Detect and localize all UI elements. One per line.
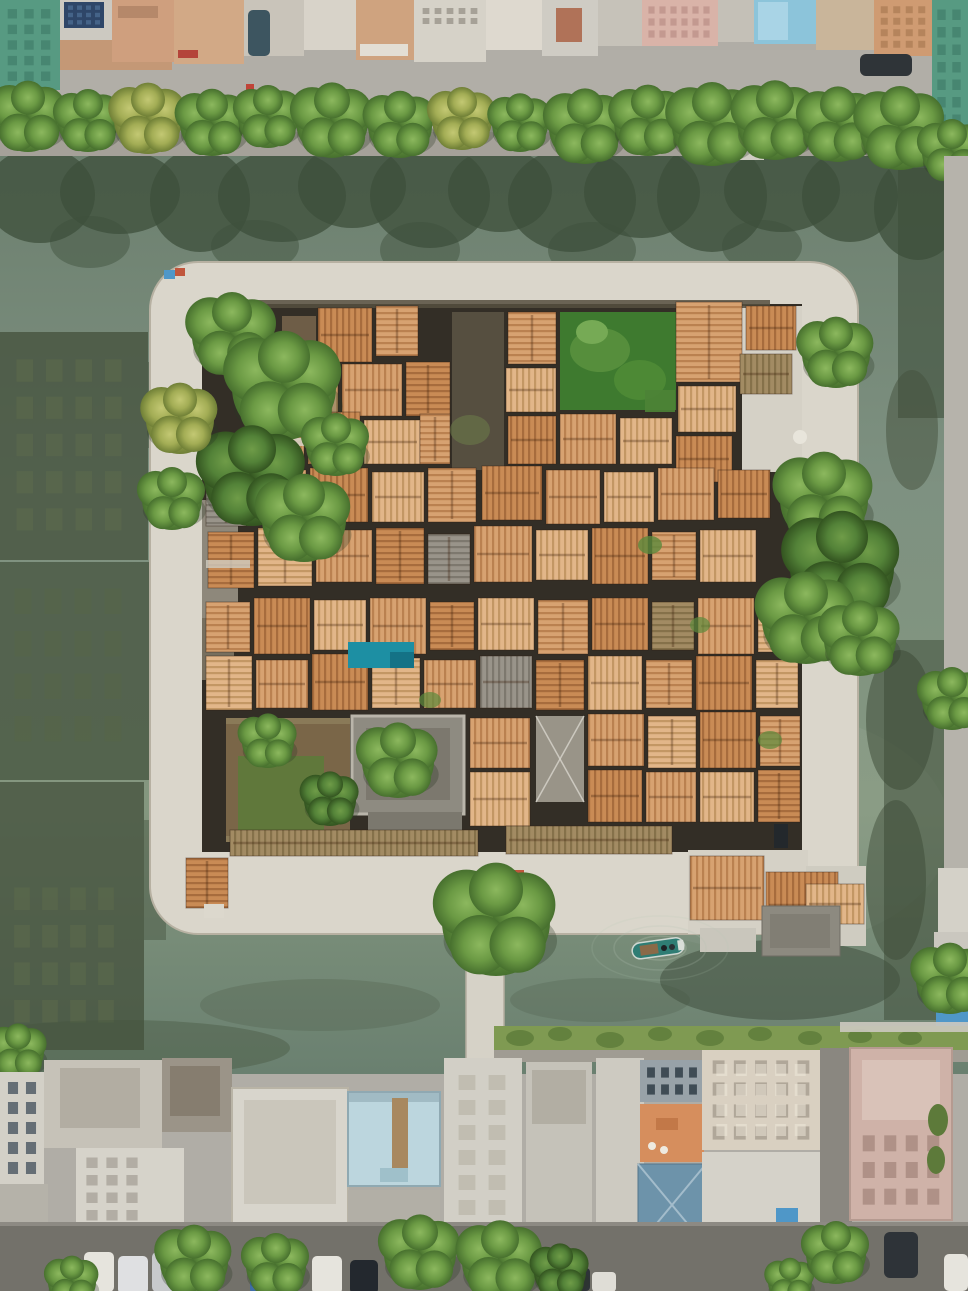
window — [716, 1124, 727, 1136]
north-bank-r — [178, 50, 198, 58]
window — [41, 40, 50, 49]
tree-canopy — [60, 1256, 84, 1280]
window — [716, 1104, 727, 1116]
window — [86, 1175, 97, 1186]
window — [756, 1124, 767, 1136]
window — [863, 1162, 875, 1178]
island-roofs-e — [576, 320, 608, 344]
window — [670, 6, 676, 13]
window — [435, 18, 442, 24]
window — [75, 716, 92, 742]
car — [350, 1260, 378, 1291]
window — [95, 20, 100, 24]
window — [952, 97, 960, 108]
window — [46, 397, 63, 419]
south-pier-hedge-e — [748, 1027, 772, 1041]
window — [68, 20, 73, 24]
window — [795, 1124, 806, 1136]
window — [703, 30, 709, 37]
north-bank-r — [758, 2, 788, 40]
tree-canopy — [937, 667, 967, 697]
village-island-r — [164, 270, 175, 279]
island-roofs-e — [758, 731, 782, 749]
water-reflections-e — [200, 979, 440, 1031]
south-bank-r — [60, 1068, 140, 1128]
car — [884, 1232, 918, 1278]
tree-canopy — [756, 80, 794, 118]
north-bank-r — [816, 0, 874, 50]
window — [906, 1135, 918, 1151]
tree-canopy — [402, 1214, 438, 1250]
window — [423, 8, 430, 14]
window — [659, 18, 665, 25]
tree-canopy — [332, 443, 363, 474]
window — [918, 41, 925, 48]
window — [471, 8, 478, 14]
window — [736, 1064, 747, 1076]
window — [906, 6, 913, 13]
island-roofs-r — [390, 652, 414, 668]
car — [118, 1256, 148, 1291]
window — [906, 18, 913, 25]
tree-canopy — [384, 91, 416, 123]
window — [648, 6, 654, 13]
window — [46, 434, 63, 456]
window — [775, 1104, 786, 1116]
window — [881, 18, 888, 25]
window — [648, 30, 654, 37]
window — [756, 1064, 767, 1076]
tree-canopy — [176, 417, 211, 452]
aerial-photo-moated-village — [0, 0, 968, 1291]
window — [45, 589, 62, 615]
island-roofs-r — [206, 560, 250, 568]
scene-canvas — [0, 0, 968, 1291]
window — [756, 1104, 767, 1116]
island-roofs-r — [204, 904, 224, 918]
north-bank-r — [360, 44, 408, 56]
window — [98, 963, 114, 986]
tree-canopy — [283, 474, 325, 516]
tree-canopy — [144, 117, 179, 152]
dark-shed — [774, 824, 788, 848]
window — [881, 29, 888, 36]
south-bank-r — [640, 1060, 704, 1102]
window — [881, 41, 888, 48]
window — [41, 9, 50, 18]
south-pier-hedge-e — [696, 1030, 724, 1046]
north-bank-r — [486, 0, 542, 50]
window — [26, 1082, 36, 1094]
window — [906, 1189, 918, 1205]
walled-yard — [452, 312, 504, 470]
window — [661, 1084, 669, 1094]
window — [659, 6, 665, 13]
window — [692, 6, 698, 13]
rooftop-tank — [793, 430, 807, 444]
window — [489, 1125, 506, 1140]
window — [459, 1150, 476, 1165]
window — [937, 80, 945, 91]
window — [692, 18, 698, 25]
window — [918, 6, 925, 13]
tree-canopy — [779, 1258, 801, 1280]
tree-canopy — [73, 89, 103, 119]
window — [459, 1075, 476, 1090]
window — [703, 18, 709, 25]
north-bank-r — [118, 6, 158, 18]
orange-roof-terrace — [640, 1104, 704, 1162]
tree-canopy — [821, 1221, 851, 1251]
water-reflections-e — [886, 370, 938, 490]
window — [937, 10, 945, 21]
window — [126, 1175, 137, 1186]
window — [41, 72, 50, 81]
window — [106, 1175, 117, 1186]
window — [8, 9, 17, 18]
window — [8, 1162, 18, 1174]
tree-canopy — [157, 467, 187, 497]
window — [70, 925, 86, 948]
car — [592, 1272, 616, 1291]
tree-canopy — [265, 739, 292, 766]
tree-canopy — [416, 1250, 453, 1287]
window — [918, 29, 925, 36]
window — [26, 1102, 36, 1114]
window — [471, 18, 478, 24]
window — [14, 1000, 30, 1023]
window — [86, 1158, 97, 1169]
pool-deck-planks — [392, 1098, 408, 1178]
tree-canopy — [24, 115, 59, 150]
south-bank-r — [170, 1066, 220, 1116]
window — [736, 1124, 747, 1136]
window — [736, 1104, 747, 1116]
south-bank-r — [862, 1060, 940, 1120]
tree-canopy — [842, 600, 878, 636]
window — [795, 1064, 806, 1076]
window — [105, 359, 122, 381]
tree-canopy — [168, 497, 199, 528]
window — [8, 72, 17, 81]
window — [75, 508, 92, 530]
window — [86, 5, 91, 9]
water-reflections-e — [50, 216, 130, 268]
window — [8, 1082, 18, 1094]
window — [26, 1162, 36, 1174]
window — [716, 1084, 727, 1096]
window — [77, 5, 82, 9]
window — [489, 1200, 506, 1215]
window — [75, 434, 92, 456]
window — [46, 508, 63, 530]
window — [884, 1135, 896, 1151]
tree-canopy — [784, 572, 828, 616]
tree-canopy — [196, 89, 228, 121]
window — [45, 631, 62, 657]
tree-canopy — [394, 758, 431, 795]
window — [105, 716, 122, 742]
window — [75, 674, 92, 700]
window — [675, 1067, 683, 1077]
right-bank-r — [938, 868, 968, 932]
tree-canopy — [253, 85, 283, 115]
window — [692, 30, 698, 37]
window — [77, 13, 82, 17]
tree-canopy — [84, 119, 115, 150]
window — [15, 716, 32, 742]
tree-canopy — [131, 83, 165, 117]
window — [884, 1162, 896, 1178]
tree-canopy — [802, 452, 846, 496]
tree-canopy — [208, 121, 241, 154]
window — [489, 1075, 506, 1090]
south-pier-hedge-e — [548, 1027, 572, 1041]
window — [14, 963, 30, 986]
tree-canopy — [819, 317, 853, 351]
window — [716, 1064, 727, 1076]
tree-canopy — [396, 123, 429, 156]
car — [248, 10, 270, 56]
window — [459, 18, 466, 24]
south-bank-r — [244, 1100, 336, 1204]
window — [489, 1175, 506, 1190]
tree-canopy — [816, 511, 868, 563]
window — [459, 8, 466, 14]
tree-canopy — [692, 82, 732, 122]
boat-person — [661, 945, 667, 951]
window — [447, 8, 454, 14]
tree-canopy — [212, 292, 252, 332]
window — [8, 56, 17, 65]
window — [46, 359, 63, 381]
tree-canopy — [517, 121, 546, 150]
south-pier-hedge-e — [648, 1027, 672, 1041]
tree-canopy — [933, 943, 967, 977]
window — [736, 1084, 747, 1096]
window — [14, 888, 30, 911]
south-bank — [0, 1048, 968, 1291]
south-bank-r — [656, 1118, 678, 1130]
window — [8, 40, 17, 49]
tree-canopy — [547, 1243, 573, 1269]
window — [70, 888, 86, 911]
south-walkway-tree — [469, 863, 523, 917]
window — [906, 1162, 918, 1178]
window — [126, 1193, 137, 1204]
window — [937, 45, 945, 56]
south-pier-hedge-e — [506, 1030, 534, 1046]
window — [106, 1158, 117, 1169]
tree-canopy — [163, 383, 197, 417]
window — [42, 888, 58, 911]
window — [795, 1104, 806, 1116]
window — [126, 1158, 137, 1169]
south-bank-e — [928, 1104, 948, 1136]
window — [86, 1210, 97, 1221]
tree-canopy — [317, 771, 343, 797]
window — [795, 1084, 806, 1096]
window — [8, 1142, 18, 1154]
window — [459, 1175, 476, 1190]
window — [893, 41, 900, 48]
window — [863, 1135, 875, 1151]
window — [893, 29, 900, 36]
window — [105, 434, 122, 456]
car — [944, 1254, 968, 1291]
window — [75, 631, 92, 657]
window — [24, 25, 33, 34]
window — [14, 925, 30, 948]
window — [126, 1210, 137, 1221]
window — [105, 508, 122, 530]
window — [24, 9, 33, 18]
south-bank-r — [702, 1152, 820, 1228]
tree-canopy — [506, 93, 534, 121]
window — [77, 20, 82, 24]
island-roofs-e — [638, 536, 662, 554]
north-bank-r — [304, 0, 356, 50]
window — [26, 1142, 36, 1154]
window — [459, 1125, 476, 1140]
window — [24, 56, 33, 65]
tree-canopy — [299, 516, 343, 560]
window — [8, 1122, 18, 1134]
tree-canopy — [447, 87, 477, 117]
window — [98, 888, 114, 911]
window — [98, 925, 114, 948]
window — [86, 13, 91, 17]
south-bank-e — [927, 1146, 945, 1174]
window — [16, 359, 33, 381]
tree-canopy — [937, 119, 967, 149]
window — [68, 13, 73, 17]
tree-canopy — [631, 85, 665, 119]
window — [647, 1084, 655, 1094]
window — [670, 30, 676, 37]
window — [45, 716, 62, 742]
window — [106, 1210, 117, 1221]
south-bank-r — [0, 1072, 44, 1184]
island-se-buildings-r — [770, 914, 830, 948]
window — [681, 18, 687, 25]
window — [689, 1067, 697, 1077]
tree-canopy — [228, 425, 276, 473]
tree-canopy — [177, 1225, 211, 1259]
window — [927, 1189, 939, 1205]
window — [86, 20, 91, 24]
window — [105, 471, 122, 493]
tree-canopy — [567, 88, 603, 124]
window — [75, 471, 92, 493]
window — [105, 674, 122, 700]
south-bank-c — [648, 1142, 656, 1150]
south-bank-c — [660, 1146, 668, 1154]
south-bank-r — [380, 1168, 408, 1182]
south-pier-hedge-e — [798, 1031, 822, 1045]
tree-canopy — [481, 1220, 519, 1258]
tree-canopy — [314, 82, 350, 118]
window — [775, 1064, 786, 1076]
window — [105, 589, 122, 615]
tree-canopy — [458, 117, 489, 148]
window — [16, 508, 33, 530]
window — [15, 631, 32, 657]
window — [46, 471, 63, 493]
window — [937, 27, 945, 38]
tree-canopy — [328, 118, 365, 155]
window — [489, 1100, 506, 1115]
window — [670, 18, 676, 25]
tree-canopy — [5, 1023, 31, 1049]
window — [675, 1084, 683, 1094]
window — [423, 18, 430, 24]
window — [75, 359, 92, 381]
tree-canopy — [820, 86, 856, 122]
window — [906, 41, 913, 48]
north-bank-r — [556, 8, 582, 42]
window — [86, 1193, 97, 1204]
water-reflections-e — [510, 978, 690, 1022]
window — [681, 6, 687, 13]
window — [447, 18, 454, 24]
tree-canopy — [321, 413, 351, 443]
tree-canopy — [856, 636, 893, 673]
window — [881, 6, 888, 13]
window — [42, 1000, 58, 1023]
window — [70, 1000, 86, 1023]
window — [952, 45, 960, 56]
window — [689, 1084, 697, 1094]
window — [42, 925, 58, 948]
window — [703, 6, 709, 13]
window — [106, 1193, 117, 1204]
window — [489, 1150, 506, 1165]
tree-canopy — [255, 713, 281, 739]
car — [860, 54, 912, 76]
tree-canopy — [380, 722, 416, 758]
window — [952, 10, 960, 21]
window — [15, 589, 32, 615]
window — [952, 27, 960, 38]
window — [863, 1189, 875, 1205]
window — [884, 1189, 896, 1205]
window — [41, 56, 50, 65]
window — [95, 5, 100, 9]
village-island-r — [175, 268, 185, 276]
window — [16, 471, 33, 493]
window — [70, 963, 86, 986]
window — [75, 397, 92, 419]
window — [893, 6, 900, 13]
window — [42, 963, 58, 986]
window — [661, 1067, 669, 1077]
window — [68, 5, 73, 9]
tree-canopy — [327, 797, 354, 824]
window — [918, 18, 925, 25]
window — [906, 29, 913, 36]
window — [459, 1100, 476, 1115]
window — [41, 25, 50, 34]
tree-canopy — [880, 86, 920, 126]
island-roofs-e — [450, 415, 490, 445]
window — [775, 1084, 786, 1096]
tree-canopy — [264, 115, 295, 146]
south-pier-hedge-e — [596, 1032, 624, 1048]
window — [105, 397, 122, 419]
window — [659, 30, 665, 37]
window — [775, 1124, 786, 1136]
